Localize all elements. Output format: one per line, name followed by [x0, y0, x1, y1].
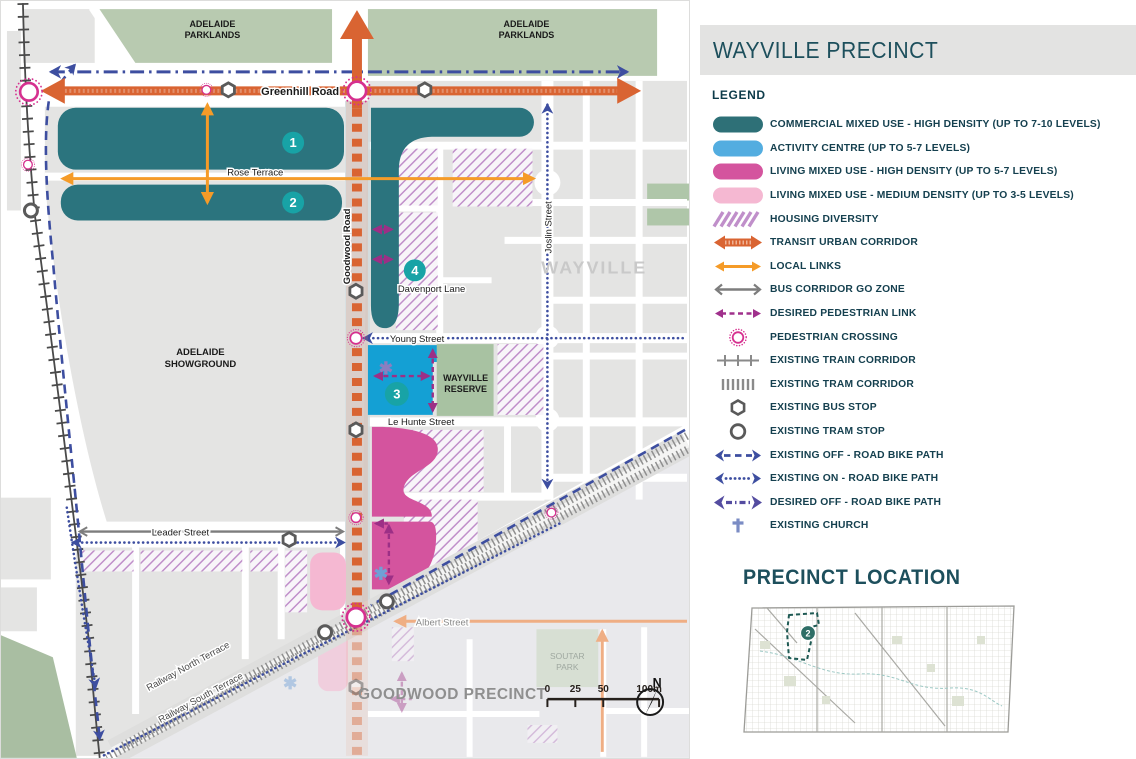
- legend-item-label: HOUSING DIVERSITY: [770, 214, 879, 225]
- svg-text:PARK: PARK: [556, 662, 579, 672]
- svg-text:1: 1: [290, 135, 297, 150]
- young-street-label: Young Street: [390, 334, 445, 345]
- legend-item-label: DESIRED OFF - ROAD BIKE PATH: [770, 497, 941, 508]
- area-marker-1: 1: [282, 132, 304, 154]
- svg-text:25: 25: [570, 684, 582, 695]
- activity-centre-swatch: [712, 139, 764, 158]
- parklands-label: ADELAIDE: [189, 19, 235, 29]
- legend-item: BUS CORRIDOR GO ZONE: [712, 278, 1122, 302]
- location-badge: 2: [801, 626, 816, 641]
- legend-title: LEGEND: [712, 88, 1122, 102]
- precinct-map: ✱ ✱ ✱ 1 2 3 4 ADELAIDE PARKLANDS ADELAID…: [0, 0, 690, 759]
- legend-item-label: COMMERCIAL MIXED USE - HIGH DENSITY (UP …: [770, 119, 1101, 130]
- area-marker-3: 3: [385, 382, 409, 406]
- desired-off-road-bike-icon: [712, 493, 764, 512]
- legend-item-label: ACTIVITY CENTRE (UP TO 5-7 LEVELS): [770, 143, 970, 154]
- legend-item: TRANSIT URBAN CORRIDOR: [712, 231, 1122, 255]
- showground-label: ADELAIDE: [176, 347, 224, 358]
- davenport-lane-label: Davenport Lane: [398, 284, 465, 295]
- svg-text:0: 0: [545, 684, 551, 695]
- church-asterisk-icon: ✱: [379, 359, 393, 378]
- greenhill-road-label: Greenhill Road: [261, 86, 339, 98]
- legend-item: HOUSING DIVERSITY: [712, 207, 1122, 231]
- legend-item: COMMERCIAL MIXED USE - HIGH DENSITY (UP …: [712, 113, 1122, 137]
- church-asterisk-icon: ✱: [374, 564, 388, 583]
- legend-item-label: EXISTING BUS STOP: [770, 402, 877, 413]
- wayville-precinct-figure: ✱ ✱ ✱ 1 2 3 4 ADELAIDE PARKLANDS ADELAID…: [0, 0, 1136, 759]
- page-title-band: WAYVILLE PRECINCT: [700, 25, 1136, 75]
- pedestrian-crossing-icon: [712, 328, 764, 347]
- joslin-street-label: Joslin Street: [543, 201, 554, 253]
- svg-text:PARKLANDS: PARKLANDS: [185, 30, 241, 40]
- svg-text:2: 2: [805, 629, 810, 639]
- svg-text:SHOWGROUND: SHOWGROUND: [165, 359, 237, 370]
- tram-stop-icon: [712, 422, 764, 441]
- church-icon: [712, 516, 764, 535]
- svg-text:RESERVE: RESERVE: [444, 384, 487, 394]
- desired-pedestrian-link-icon: [712, 304, 764, 323]
- albert-street-label: Albert Street: [416, 617, 469, 628]
- legend-item: EXISTING TRAM CORRIDOR: [712, 373, 1122, 397]
- info-panel: WAYVILLE PRECINCT LEGEND COMMERCIAL MIXE…: [690, 0, 1136, 759]
- legend-item-label: TRANSIT URBAN CORRIDOR: [770, 237, 918, 248]
- legend-item: LIVING MIXED USE - HIGH DENSITY (UP TO 5…: [712, 160, 1122, 184]
- legend-item: EXISTING TRAIN CORRIDOR: [712, 349, 1122, 373]
- local-links-icon: [712, 257, 764, 276]
- north-label: N: [653, 676, 662, 690]
- soutar-label: SOUTAR: [550, 651, 585, 661]
- legend-item-label: LIVING MIXED USE - MEDIUM DENSITY (UP TO…: [770, 190, 1074, 201]
- svg-text:3: 3: [393, 386, 400, 401]
- legend-item: EXISTING CHURCH: [712, 514, 1122, 538]
- legend-item-label: EXISTING TRAM STOP: [770, 426, 885, 437]
- legend-item-label: DESIRED PEDESTRIAN LINK: [770, 308, 916, 319]
- parklands-label: ADELAIDE: [504, 19, 550, 29]
- svg-text:4: 4: [411, 263, 419, 278]
- bus-corridor-icon: [712, 280, 764, 299]
- svg-text:2: 2: [290, 195, 297, 210]
- le-hunte-street-label: Le Hunte Street: [388, 417, 455, 428]
- legend-item: DESIRED OFF - ROAD BIKE PATH: [712, 491, 1122, 515]
- precinct-map-svg: ✱ ✱ ✱ 1 2 3 4 ADELAIDE PARKLANDS ADELAID…: [1, 1, 689, 758]
- living-medium-zone: [310, 552, 346, 610]
- leader-street-label: Leader Street: [152, 528, 210, 539]
- svg-text:PARKLANDS: PARKLANDS: [499, 30, 555, 40]
- bus-stop-icon: [712, 398, 764, 417]
- legend-item: LIVING MIXED USE - MEDIUM DENSITY (UP TO…: [712, 184, 1122, 208]
- off-road-bike-icon: [712, 446, 764, 465]
- legend-item-label: PEDESTRIAN CROSSING: [770, 332, 898, 343]
- legend-item-label: EXISTING OFF - ROAD BIKE PATH: [770, 450, 944, 461]
- living-medium-swatch: [712, 186, 764, 205]
- legend-item: LOCAL LINKS: [712, 255, 1122, 279]
- living-high-swatch: [712, 162, 764, 181]
- goodwood-road-label: Goodwood Road: [342, 208, 353, 284]
- train-corridor-icon: [712, 351, 764, 370]
- legend-item: EXISTING OFF - ROAD BIKE PATH: [712, 443, 1122, 467]
- church-asterisk-icon: ✱: [283, 674, 297, 693]
- svg-text:50: 50: [598, 684, 610, 695]
- legend-item-label: EXISTING TRAIN CORRIDOR: [770, 355, 916, 366]
- legend-item: EXISTING ON - ROAD BIKE PATH: [712, 467, 1122, 491]
- goodwood-precinct-label: GOODWOOD PRECINCT: [358, 686, 547, 703]
- legend-item: DESIRED PEDESTRIAN LINK: [712, 302, 1122, 326]
- legend-item-label: LIVING MIXED USE - HIGH DENSITY (UP TO 5…: [770, 166, 1058, 177]
- precinct-location-title: PRECINCT LOCATION: [743, 566, 1099, 590]
- legend-item: EXISTING TRAM STOP: [712, 420, 1122, 444]
- transit-urban-corridor-icon: [712, 233, 764, 252]
- tram-corridor-icon: [712, 375, 764, 394]
- legend-item: EXISTING BUS STOP: [712, 396, 1122, 420]
- reserve-label: WAYVILLE: [443, 373, 488, 383]
- legend-item-label: BUS CORRIDOR GO ZONE: [770, 284, 905, 295]
- wayville-label: WAYVILLE: [541, 257, 647, 277]
- precinct-location-map: 2: [740, 596, 1030, 741]
- legend-item-label: EXISTING ON - ROAD BIKE PATH: [770, 473, 938, 484]
- legend-item-label: LOCAL LINKS: [770, 261, 841, 272]
- on-road-bike-icon: [712, 469, 764, 488]
- legend-item-label: EXISTING TRAM CORRIDOR: [770, 379, 914, 390]
- legend-item: ACTIVITY CENTRE (UP TO 5-7 LEVELS): [712, 137, 1122, 161]
- housing-diversity-swatch: [712, 210, 764, 229]
- commercial-swatch: [712, 115, 764, 134]
- page-title: WAYVILLE PRECINCT: [700, 37, 938, 64]
- precinct-location: PRECINCT LOCATION: [712, 566, 1122, 746]
- legend: LEGEND COMMERCIAL MIXED USE - HIGH DENSI…: [712, 88, 1122, 538]
- area-marker-2: 2: [282, 192, 304, 214]
- area-marker-4: 4: [404, 259, 426, 281]
- legend-item: PEDESTRIAN CROSSING: [712, 325, 1122, 349]
- legend-item-label: EXISTING CHURCH: [770, 520, 869, 531]
- location-map-outline: [744, 606, 1014, 732]
- rose-terrace-label: Rose Terrace: [227, 168, 283, 179]
